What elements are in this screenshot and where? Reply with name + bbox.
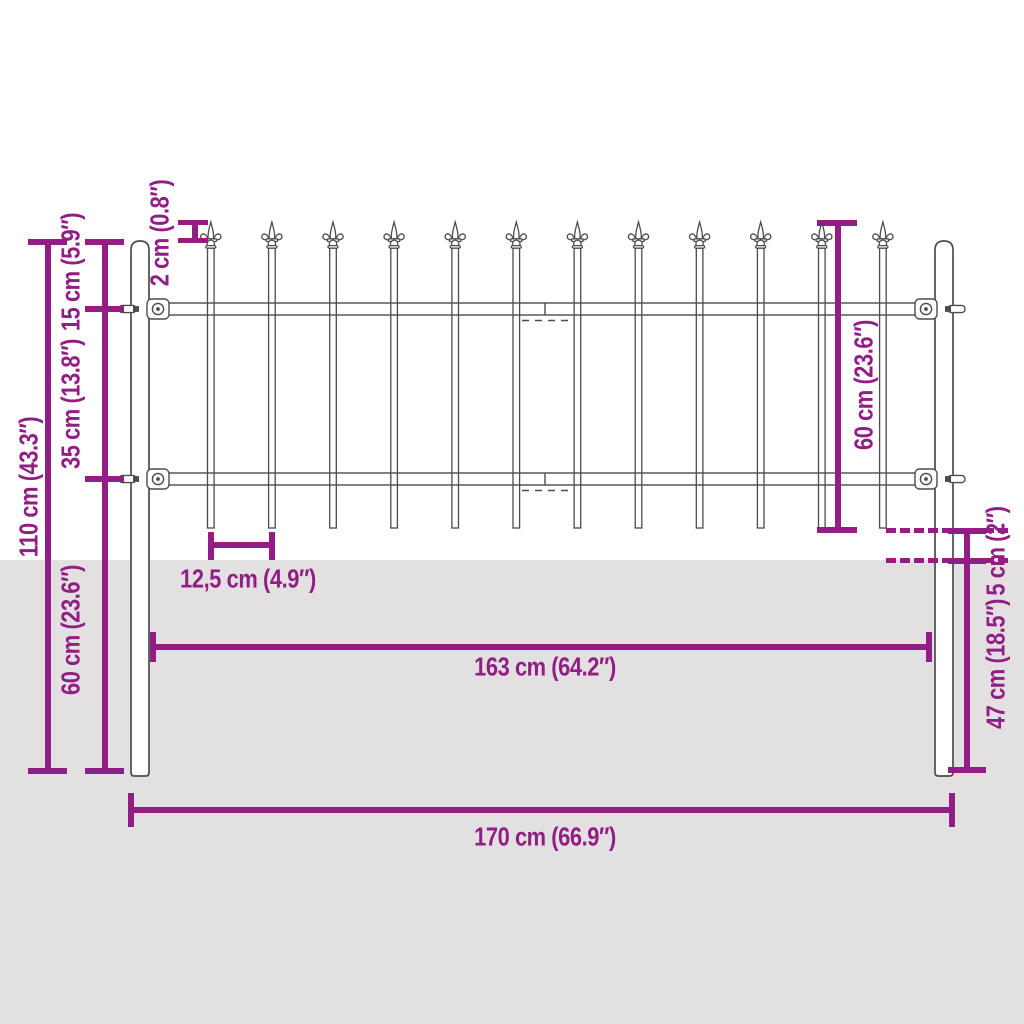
dim-line-panel-height (835, 222, 841, 532)
dim-label-60cm-left: 60 cm (23.6″) (56, 565, 87, 695)
dim-line-left-segments (102, 241, 108, 773)
rail-joint (522, 303, 568, 491)
picket (384, 222, 404, 528)
dim-label-picket-spacing: 12,5 cm (4.9″) (180, 564, 316, 595)
dim-tick (28, 768, 67, 774)
dim-tick (817, 220, 857, 226)
dim-line-below-ground (964, 530, 970, 772)
fence-drawing (0, 0, 1024, 1024)
dim-label-total-width: 170 cm (66.9″) (474, 822, 616, 853)
dim-tick (178, 220, 208, 225)
dim-line-panel-width (153, 644, 932, 650)
dim-label-60cm-right: 60 cm (23.6″) (849, 320, 880, 450)
picket (506, 222, 526, 528)
dim-tick (948, 767, 986, 773)
left-post (131, 241, 149, 776)
picket (201, 222, 221, 528)
spear-finial-icon (873, 222, 893, 248)
dim-tick (128, 793, 134, 827)
dim-label-5cm: 5 cm (2″) (981, 506, 1012, 595)
spear-finial-icon (323, 222, 343, 248)
dim-tick (85, 476, 124, 482)
dim-tick (208, 532, 214, 560)
spear-finial-icon (751, 222, 771, 248)
dim-label-2cm: 2 cm (0.8″) (145, 180, 176, 287)
spear-finial-icon (628, 222, 648, 248)
dim-label-total-height: 110 cm (43.3″) (14, 417, 45, 558)
dim-tick (85, 768, 124, 774)
dim-label-47cm: 47 cm (18.5″) (981, 599, 1012, 729)
dim-tick (85, 306, 124, 312)
dim-tick (926, 632, 932, 662)
dim-tick (85, 239, 124, 245)
right-post (935, 241, 953, 776)
picket (323, 222, 343, 528)
dim-tick (817, 527, 857, 533)
dim-line-total-width (131, 807, 953, 813)
spear-finial-icon (262, 222, 282, 248)
spear-finial-icon (384, 222, 404, 248)
spear-finial-icon (201, 222, 221, 248)
picket (751, 222, 771, 528)
picket (689, 222, 709, 528)
dim-label-panel-width: 163 cm (64.2″) (474, 652, 616, 683)
picket (628, 222, 648, 528)
picket (567, 222, 587, 528)
picket (262, 222, 282, 528)
dim-tick (269, 532, 275, 560)
spear-finial-icon (689, 222, 709, 248)
dim-label-15cm: 15 cm (5.9″) (56, 213, 87, 331)
spear-finial-icon (445, 222, 465, 248)
dim-tick (150, 632, 156, 662)
dim-line-picket-spacing (211, 542, 272, 548)
dim-label-35cm: 35 cm (13.8″) (56, 339, 87, 469)
spear-finial-icon (506, 222, 526, 248)
dim-line-total-height (45, 241, 51, 773)
spear-finial-icon (567, 222, 587, 248)
dim-tick (178, 238, 208, 243)
picket (445, 222, 465, 528)
picket (812, 222, 832, 528)
fence-dimension-diagram: 110 cm (43.3″) 15 cm (5.9″) 35 cm (13.8″… (0, 0, 1024, 1024)
dim-tick (949, 793, 955, 827)
